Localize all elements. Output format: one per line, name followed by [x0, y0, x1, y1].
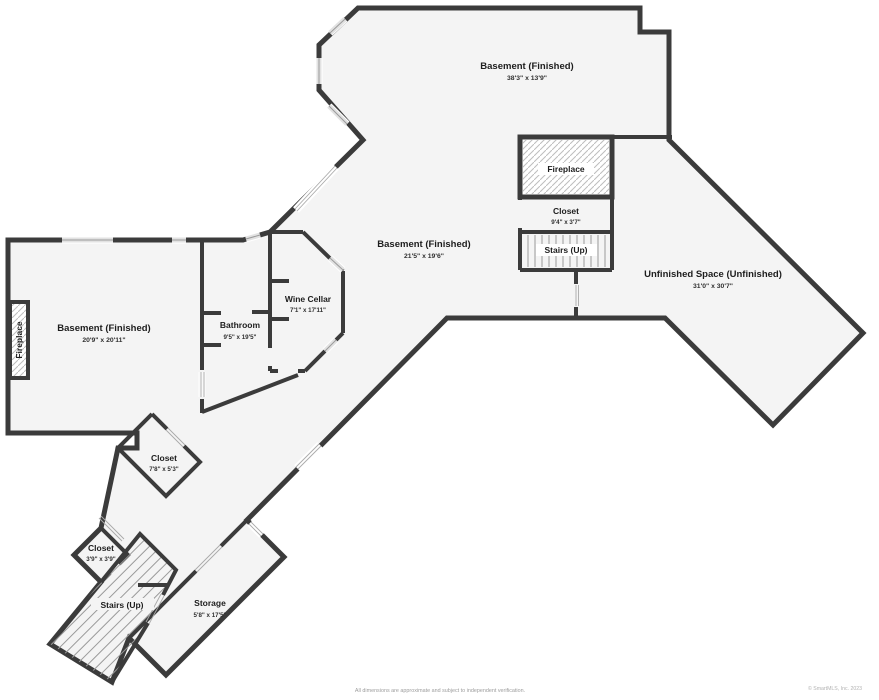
room-name: Closet	[553, 206, 579, 216]
room-name: Closet	[151, 453, 177, 463]
floorplan-page: Basement (Finished) 38'3" x 13'9" Baseme…	[0, 0, 879, 700]
room-name: Basement (Finished)	[377, 239, 470, 250]
room-name: Bathroom	[220, 320, 261, 330]
room-label-stairs-bottom: Stairs (Up)	[91, 598, 154, 610]
footer-copyright: © SmartMLS, Inc. 2023	[808, 685, 862, 692]
room-dims: 38'3" x 13'9"	[507, 75, 547, 82]
room-dims: 9'5" x 19'5"	[224, 334, 257, 341]
room-label-fireplace-top: Fireplace	[538, 163, 594, 175]
room-name: Stairs (Up)	[101, 600, 144, 610]
room-label-fireplace-left: Fireplace	[14, 321, 24, 359]
room-name: Storage	[194, 598, 226, 608]
room-dims: 5'8" x 17'5"	[194, 612, 227, 619]
room-name: Closet	[88, 543, 114, 553]
room-name: Fireplace	[547, 164, 585, 174]
room-dims: 9'4" x 3'7"	[551, 219, 581, 226]
room-name: Basement (Finished)	[57, 323, 150, 334]
room-label-stairs-top: Stairs (Up)	[536, 244, 597, 256]
room-name: Basement (Finished)	[480, 61, 573, 72]
room-name: Unfinished Space (Unfinished)	[644, 269, 782, 280]
room-name: Stairs (Up)	[545, 245, 588, 255]
room-dims: 21'5" x 19'6"	[404, 253, 444, 260]
room-name: Fireplace	[14, 321, 24, 359]
room-dims: 7'1" x 17'11"	[290, 307, 326, 314]
room-dims: 31'0" x 30'7"	[693, 283, 733, 290]
room-dims: 3'9" x 3'9"	[86, 556, 116, 563]
room-dims: 20'9" x 20'11"	[82, 337, 125, 344]
room-name: Wine Cellar	[285, 294, 332, 304]
room-dims: 7'8" x 5'3"	[149, 466, 179, 473]
floorplan-canvas: Basement (Finished) 38'3" x 13'9" Baseme…	[0, 0, 879, 700]
footer-disclaimer: All dimensions are approximate and subje…	[355, 688, 525, 694]
